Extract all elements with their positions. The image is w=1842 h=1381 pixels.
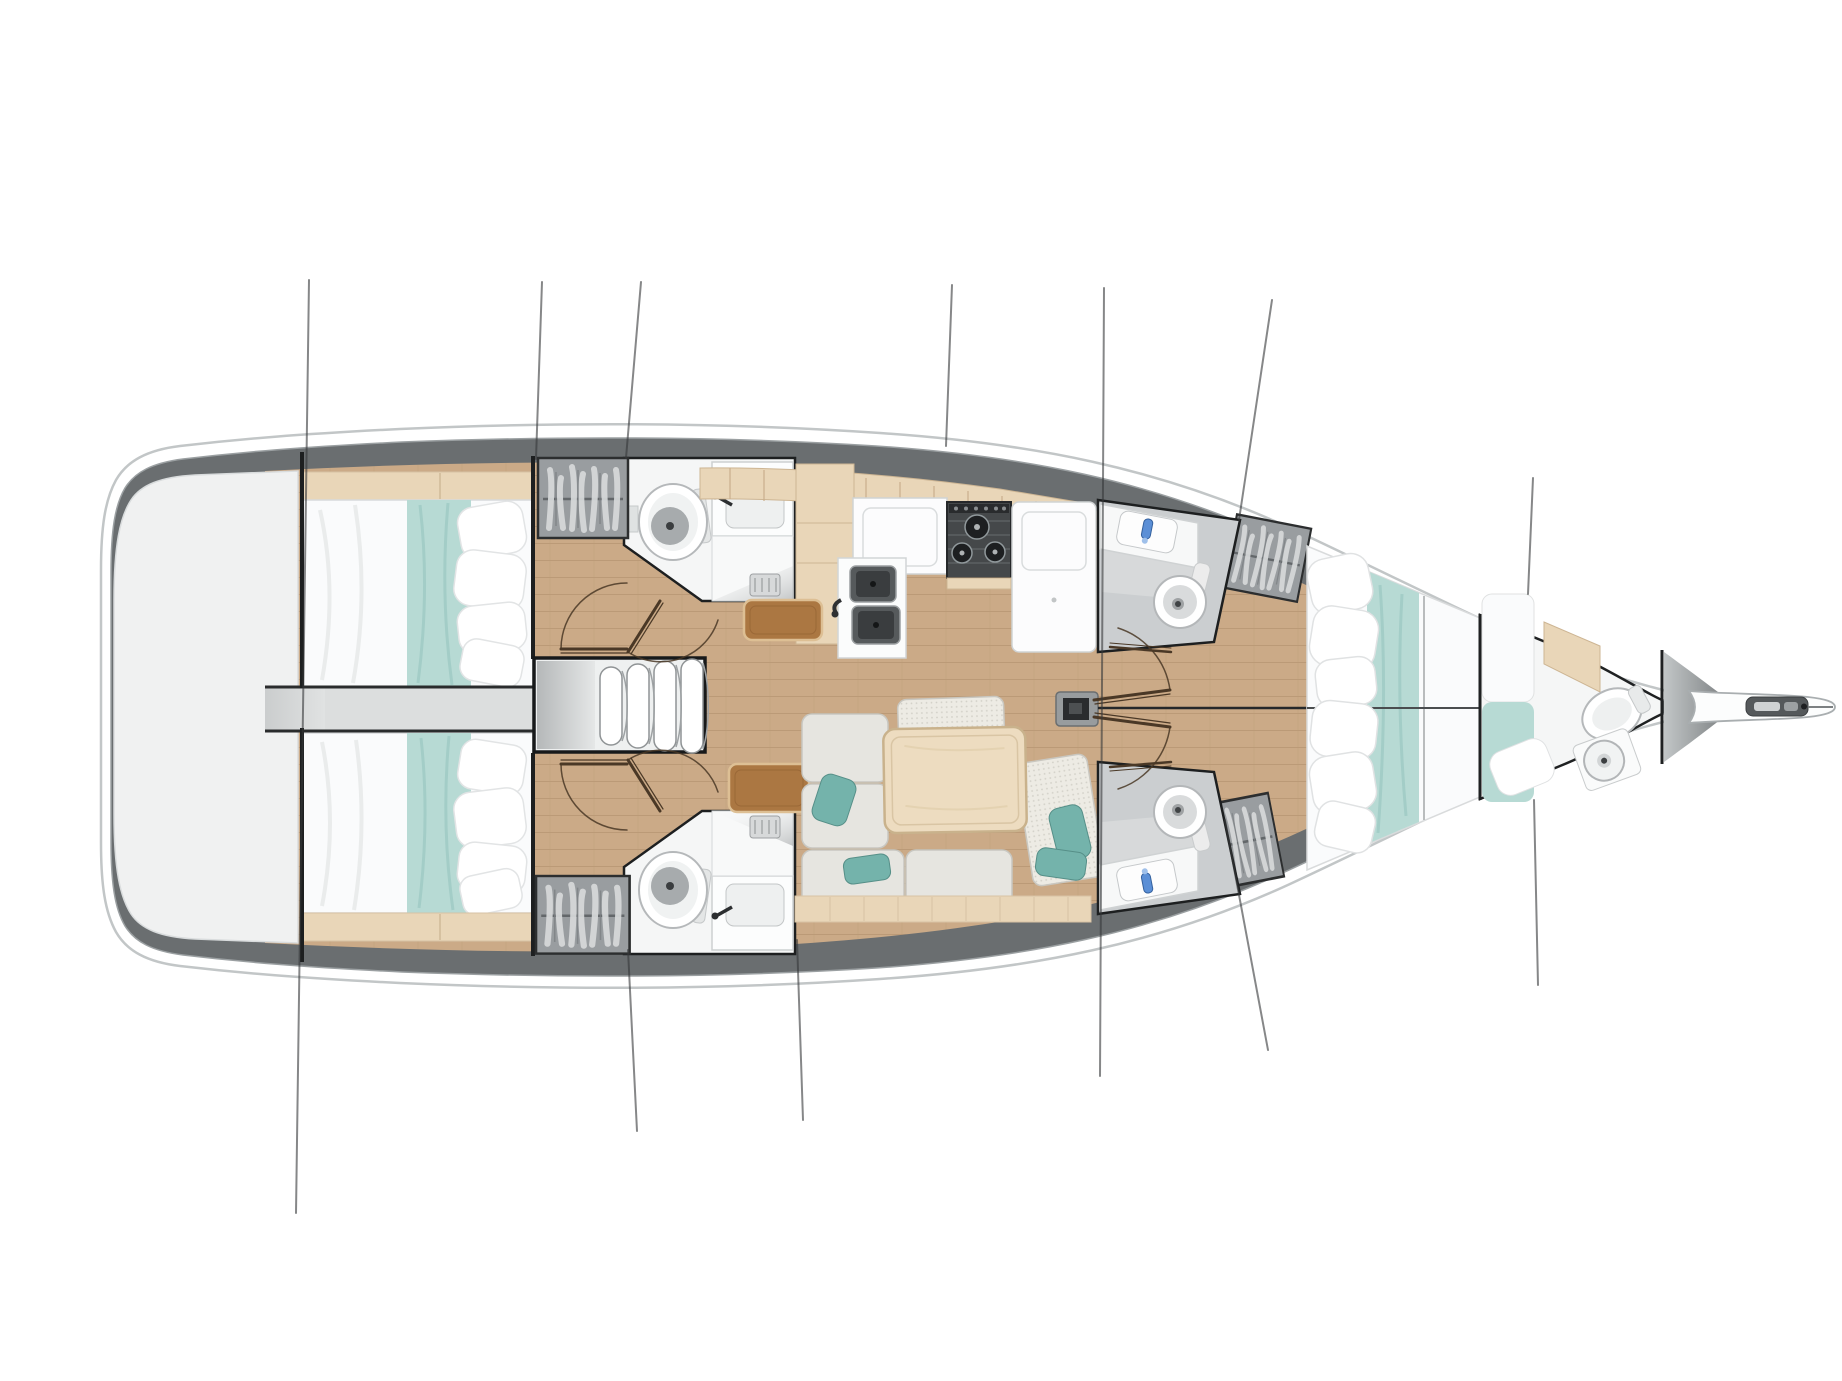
stove bbox=[947, 502, 1011, 589]
pillows bbox=[452, 737, 529, 918]
stay-line bbox=[1528, 478, 1533, 594]
sofa-base-wood bbox=[795, 896, 1091, 922]
shelf-wood bbox=[303, 913, 533, 941]
pillows bbox=[452, 499, 529, 690]
stay-line bbox=[946, 285, 952, 446]
bowsprit bbox=[1689, 691, 1835, 723]
aft-cabin-port bbox=[303, 472, 533, 690]
wardrobe-aft-port bbox=[538, 458, 628, 538]
vanity-washbasin bbox=[712, 811, 794, 950]
wardrobe-aft-starboard bbox=[536, 876, 630, 954]
aft-cabin-starboard bbox=[303, 733, 533, 941]
mast-step bbox=[1056, 692, 1098, 726]
yacht-floorplan-canvas bbox=[0, 0, 1842, 1381]
stay-line bbox=[1239, 300, 1272, 520]
shower-drain bbox=[750, 574, 780, 596]
engine-passage bbox=[265, 687, 534, 731]
saloon-table bbox=[883, 727, 1027, 833]
stay-line bbox=[1534, 800, 1538, 985]
shelf-wood bbox=[303, 472, 533, 500]
bow-berth-and-head bbox=[1480, 594, 1662, 802]
companionway-stairs bbox=[534, 658, 708, 753]
galley-sinks bbox=[832, 558, 907, 658]
bow-berth-cushion bbox=[1482, 594, 1534, 702]
yacht-floorplan bbox=[0, 0, 1842, 1381]
fridge-counter bbox=[1012, 502, 1096, 652]
cabinet-brown-aft bbox=[729, 764, 809, 812]
shower-drain bbox=[750, 816, 780, 838]
